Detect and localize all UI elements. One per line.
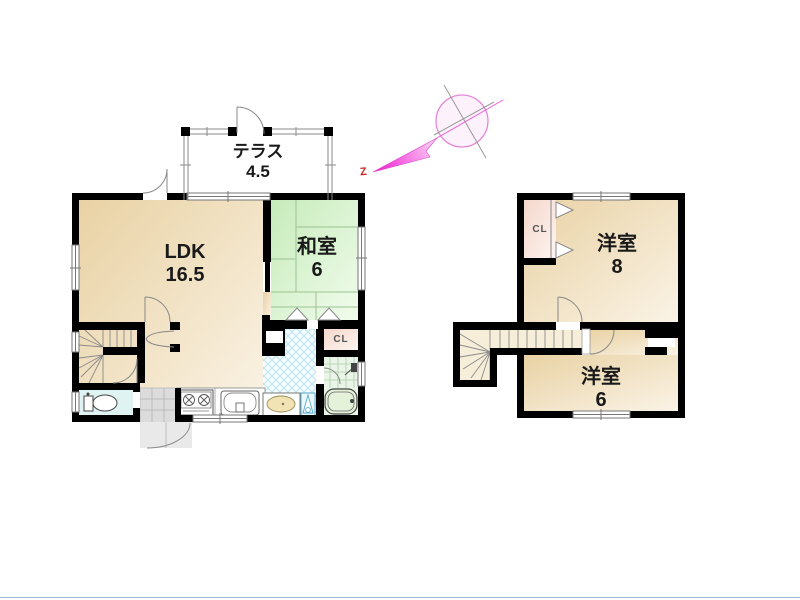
compass-needle: [373, 138, 437, 172]
ldk-area: 16.5: [164, 264, 205, 287]
terrace-label: テラス 4.5: [233, 142, 284, 181]
washer-pan-icon: [301, 393, 315, 416]
closet2-label: CL: [532, 224, 547, 235]
floor2: [453, 191, 685, 420]
ldk-label: LDK 16.5: [164, 241, 205, 287]
washbasin-icon: [263, 393, 300, 416]
western-room-8-name: 洋室: [597, 233, 637, 255]
compass-circle: [436, 95, 488, 147]
floor-plan-page: テラス 4.5 LDK 16.5 和室 6 CL 洋室 8 洋室 6 CL Z: [0, 0, 800, 600]
western-room-8-area: 8: [597, 256, 637, 279]
compass-north-label: Z: [359, 166, 367, 179]
japanese-room-area: 6: [297, 259, 337, 282]
japanese-room-name: 和室: [297, 236, 337, 258]
entrance-floor: [140, 388, 177, 422]
terrace-door: [237, 107, 264, 134]
western-room-6-label: 洋室 6: [581, 366, 621, 412]
washroom-duct: [266, 331, 283, 343]
terrace-name: テラス: [233, 142, 284, 161]
page-bottom-rule: [0, 597, 800, 598]
kitchen: [177, 388, 265, 416]
ldk-name: LDK: [164, 241, 205, 263]
terrace-area: 4.5: [233, 162, 284, 182]
sink-icon: [221, 391, 259, 415]
floor-plan-drawing: [0, 0, 800, 600]
stove-icon: [179, 390, 213, 415]
toilet-doorway: [133, 392, 140, 408]
western-room-6-area: 6: [581, 389, 621, 412]
western-room-6-name: 洋室: [581, 366, 621, 388]
japanese-room-label: 和室 6: [297, 236, 337, 282]
wall-notch: [648, 338, 675, 347]
compass: [373, 85, 503, 172]
bathtub-icon: [325, 389, 357, 414]
room6-doorway: [582, 329, 590, 354]
western-room-8-label: 洋室 8: [597, 233, 637, 279]
closet1-label: CL: [333, 334, 348, 345]
room8-doorway: [556, 322, 580, 330]
